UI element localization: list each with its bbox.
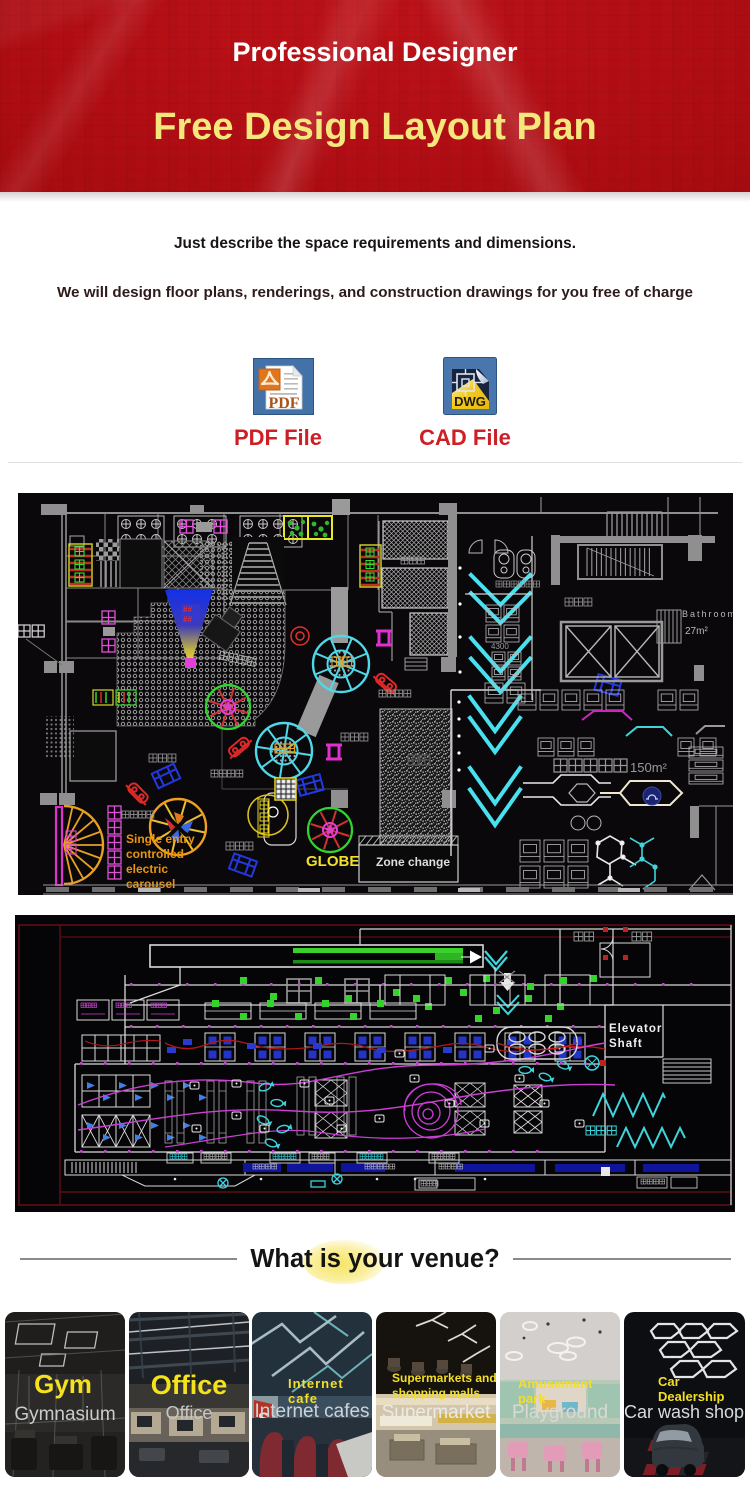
svg-text:PDF: PDF [268, 395, 299, 412]
svg-text:Supermarket: Supermarket [382, 1402, 491, 1423]
svg-text:Playground: Playground [512, 1402, 608, 1423]
svg-text:Zone change: Zone change [376, 855, 450, 869]
svg-text:DWG: DWG [454, 394, 486, 409]
svg-text:##: ## [183, 605, 192, 614]
svg-text:shopping malls: shopping malls [392, 1386, 480, 1400]
svg-text:4300: 4300 [491, 642, 509, 651]
svg-text:Office: Office [150, 1370, 227, 1400]
svg-text:##: ## [183, 615, 192, 624]
svg-text:Elevator: Elevator [609, 1023, 662, 1035]
svg-text:GLOBE: GLOBE [306, 853, 359, 870]
svg-text:electric: electric [126, 862, 168, 876]
svg-text:Office: Office [165, 1403, 212, 1423]
svg-text:150m²: 150m² [630, 760, 668, 775]
svg-text:Gymnasium: Gymnasium [14, 1404, 115, 1425]
svg-text:Shaft: Shaft [609, 1038, 643, 1050]
svg-text:Car: Car [658, 1374, 680, 1389]
svg-text:Car wash shop: Car wash shop [624, 1402, 744, 1422]
svg-text:Gym: Gym [34, 1369, 92, 1399]
svg-text:Amusement: Amusement [518, 1376, 593, 1391]
svg-text:Bathroom: Bathroom [682, 609, 733, 619]
svg-text:Single entry: Single entry [126, 832, 195, 846]
svg-text:Supermarkets and: Supermarkets and [392, 1371, 496, 1385]
svg-text:controlled: controlled [126, 847, 184, 861]
svg-text:Internet cafes: Internet cafes [255, 1401, 370, 1422]
svg-text:27m²: 27m² [685, 626, 708, 637]
svg-text:Internet: Internet [288, 1376, 344, 1391]
